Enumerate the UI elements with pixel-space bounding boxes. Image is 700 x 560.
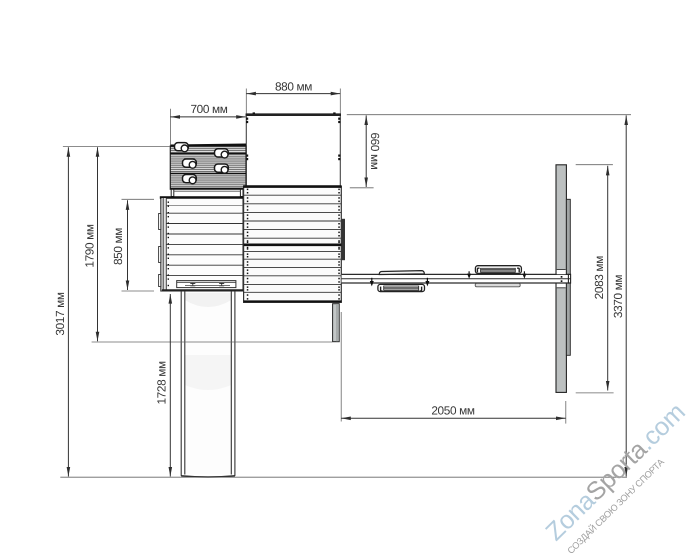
svg-text:2050 мм: 2050 мм <box>431 403 475 417</box>
svg-text:700 мм: 700 мм <box>190 102 227 116</box>
svg-text:880 мм: 880 мм <box>275 79 312 93</box>
svg-text:660 мм: 660 мм <box>368 132 382 169</box>
svg-text:1790 мм: 1790 мм <box>82 224 96 268</box>
svg-text:3370 мм: 3370 мм <box>611 275 625 319</box>
svg-text:3017 мм: 3017 мм <box>53 292 67 336</box>
svg-text:1728 мм: 1728 мм <box>154 361 168 405</box>
svg-text:2083 мм: 2083 мм <box>592 256 606 300</box>
svg-text:850 мм: 850 мм <box>111 228 125 265</box>
